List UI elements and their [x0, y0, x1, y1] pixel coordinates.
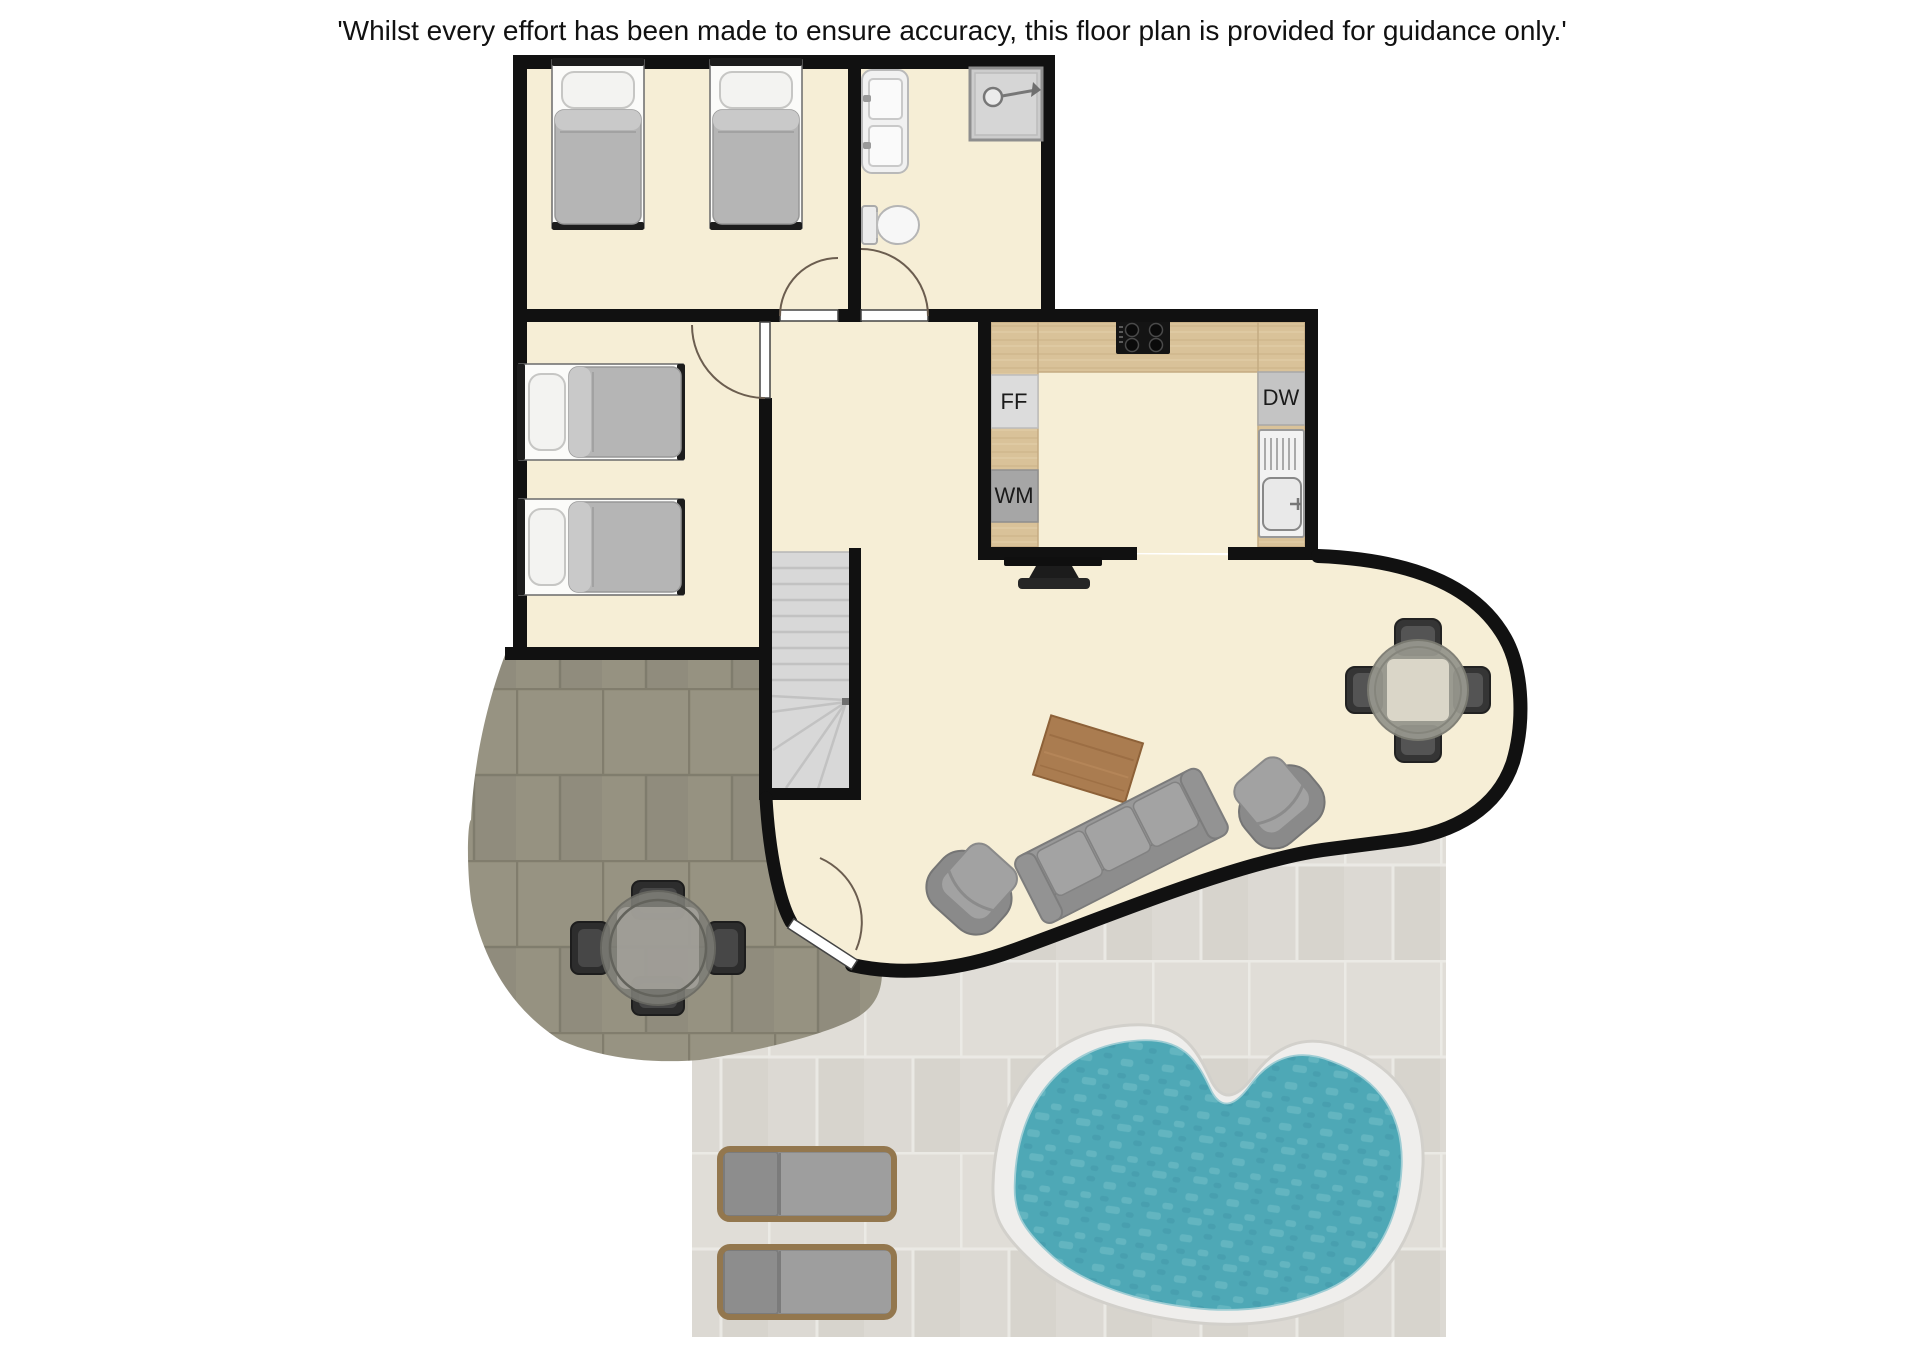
shower-head-icon [984, 88, 1002, 106]
dining-table-top [1387, 659, 1449, 721]
single-bed [552, 58, 644, 230]
wm-label: WM [994, 483, 1033, 508]
floor-plan-page: 'Whilst every effort has been made to en… [0, 0, 1920, 1358]
disclaimer-text: 'Whilst every effort has been made to en… [337, 15, 1566, 46]
shower [970, 68, 1042, 140]
dw-label: DW [1263, 385, 1300, 410]
ff-label: FF [1001, 389, 1028, 414]
fridge-freezer: FF [991, 375, 1038, 428]
double-sink-unit [862, 70, 908, 173]
bedroom2-door-leaf [760, 322, 770, 398]
floor-plan: 'Whilst every effort has been made to en… [0, 0, 1920, 1358]
toilet [862, 206, 919, 244]
bedroom1-door-leaf [780, 310, 838, 321]
single-bed [517, 364, 685, 460]
single-bed [710, 58, 802, 230]
bathroom-door-leaf [861, 310, 928, 321]
outdoor-table-top [617, 907, 699, 989]
stairs [770, 552, 850, 792]
sun-lounger [720, 1247, 894, 1317]
washing-machine: WM [991, 470, 1038, 522]
hob [1116, 320, 1170, 354]
kitchen-sink [1259, 430, 1304, 537]
single-bed [517, 499, 685, 595]
sun-lounger [720, 1149, 894, 1219]
dishwasher: DW [1258, 372, 1305, 425]
